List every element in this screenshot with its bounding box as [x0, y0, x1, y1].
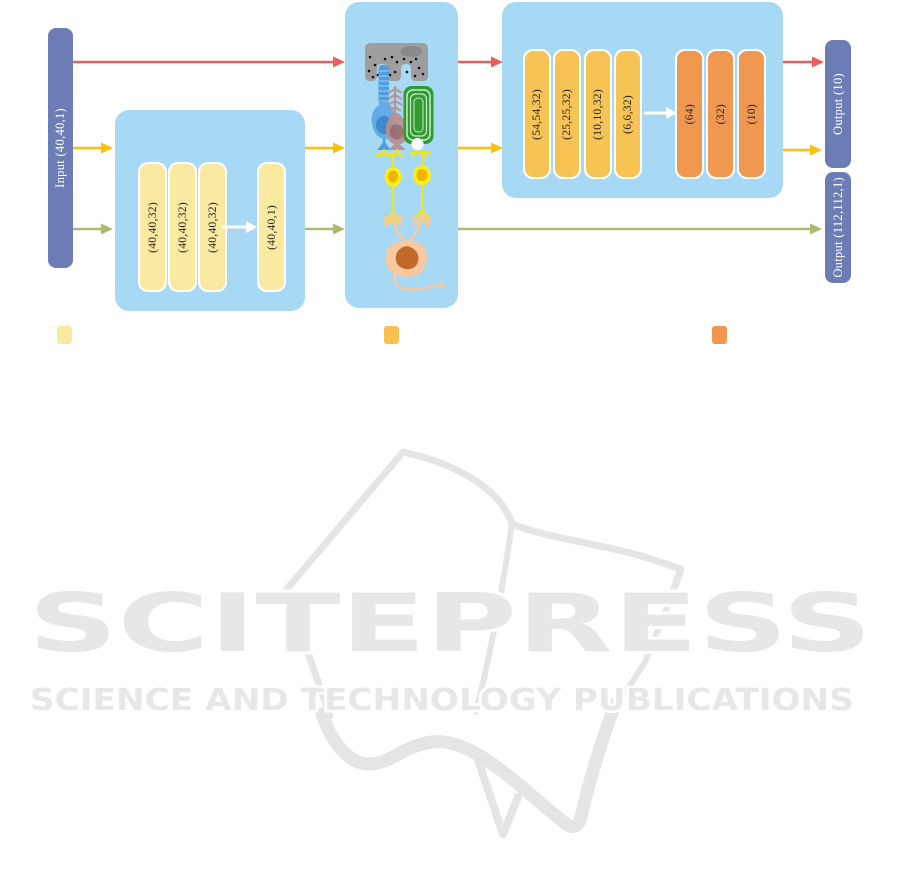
retina-illustration	[345, 2, 458, 308]
figure-canvas: SCITEPRESS SCIENCE AND TECHNOLOGY PUBLIC…	[0, 0, 901, 883]
sae-layer-4-label: (40,40,1)	[266, 205, 278, 250]
cnn-conv-layer-4: (6,6,32)	[614, 49, 642, 179]
legend-swatch-orange	[712, 326, 727, 344]
sae-layer-4: (40,40,1)	[257, 162, 286, 292]
input-label: Input (40,40,1)	[53, 108, 68, 188]
input-bar: Input (40,40,1)	[48, 28, 73, 268]
cnn-conv-layer-4-label: (6,6,32)	[622, 95, 634, 134]
output-image-label: Output (112,112,1)	[831, 177, 846, 278]
sae-layer-3: (40,40,32)	[198, 162, 227, 292]
green-capsule-icon	[404, 86, 434, 150]
cnn-dense-layer-3: (10)	[737, 49, 766, 179]
cnn-dense-layer-1: (64)	[675, 49, 704, 179]
sae-layer-2-label: (40,40,32)	[177, 202, 189, 253]
sae-layer-3-label: (40,40,32)	[207, 202, 219, 253]
legend-swatch-light-yellow	[57, 326, 72, 344]
sae-layer-2: (40,40,32)	[168, 162, 197, 292]
cnn-conv-layer-2-label: (25,25,32)	[561, 89, 573, 140]
sae-layer-1: (40,40,32)	[138, 162, 167, 292]
bipolar-cells-icon	[377, 150, 431, 223]
output-bar-image: Output (112,112,1)	[825, 172, 851, 283]
cnn-dense-layer-1-label: (64)	[684, 104, 696, 124]
cnn-dense-layer-2: (32)	[706, 49, 735, 179]
cnn-conv-layer-3: (10,10,32)	[584, 49, 612, 179]
ganglion-cell-icon	[384, 214, 443, 289]
legend-swatch-amber	[384, 326, 399, 344]
sae-layer-1-label: (40,40,32)	[147, 202, 159, 253]
output-bar-classes: Output (10)	[825, 40, 851, 168]
watermark-tagline-text: SCIENCE AND TECHNOLOGY PUBLICATIONS	[30, 683, 854, 718]
pigment-epithelium-icon	[365, 43, 428, 81]
cnn-conv-layer-1-label: (54,54,32)	[531, 89, 543, 140]
cnn-conv-layer-1: (54,54,32)	[523, 49, 551, 179]
cnn-conv-layer-3-label: (10,10,32)	[592, 89, 604, 140]
output-classes-label: Output (10)	[831, 73, 846, 135]
cnn-dense-layer-2-label: (32)	[715, 104, 727, 124]
cnn-dense-layer-3-label: (10)	[746, 104, 758, 124]
cnn-conv-layer-2: (25,25,32)	[553, 49, 581, 179]
watermark-logo-text: SCITEPRESS	[28, 577, 872, 670]
